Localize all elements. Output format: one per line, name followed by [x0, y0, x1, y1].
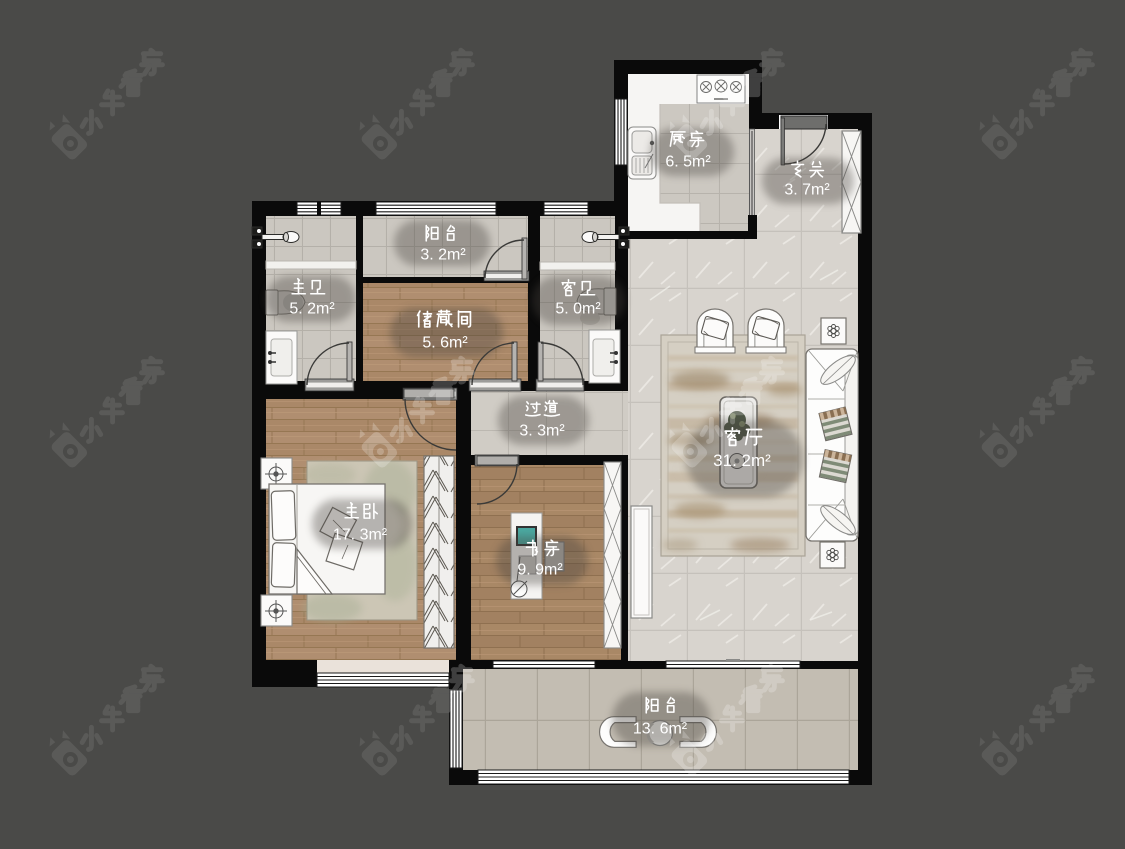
svg-text:3. 7m²: 3. 7m²	[784, 182, 830, 199]
svg-text:3. 3m²: 3. 3m²	[519, 423, 565, 440]
svg-text:9. 9m²: 9. 9m²	[517, 562, 563, 579]
svg-text:31. 2m²: 31. 2m²	[713, 451, 771, 470]
svg-text:17. 3m²: 17. 3m²	[333, 527, 388, 544]
svg-text:13. 6m²: 13. 6m²	[633, 721, 688, 738]
svg-text:5. 6m²: 5. 6m²	[422, 335, 468, 352]
svg-text:5. 0m²: 5. 0m²	[555, 301, 601, 318]
svg-text:3. 2m²: 3. 2m²	[420, 247, 466, 264]
svg-text:5. 2m²: 5. 2m²	[289, 301, 335, 318]
